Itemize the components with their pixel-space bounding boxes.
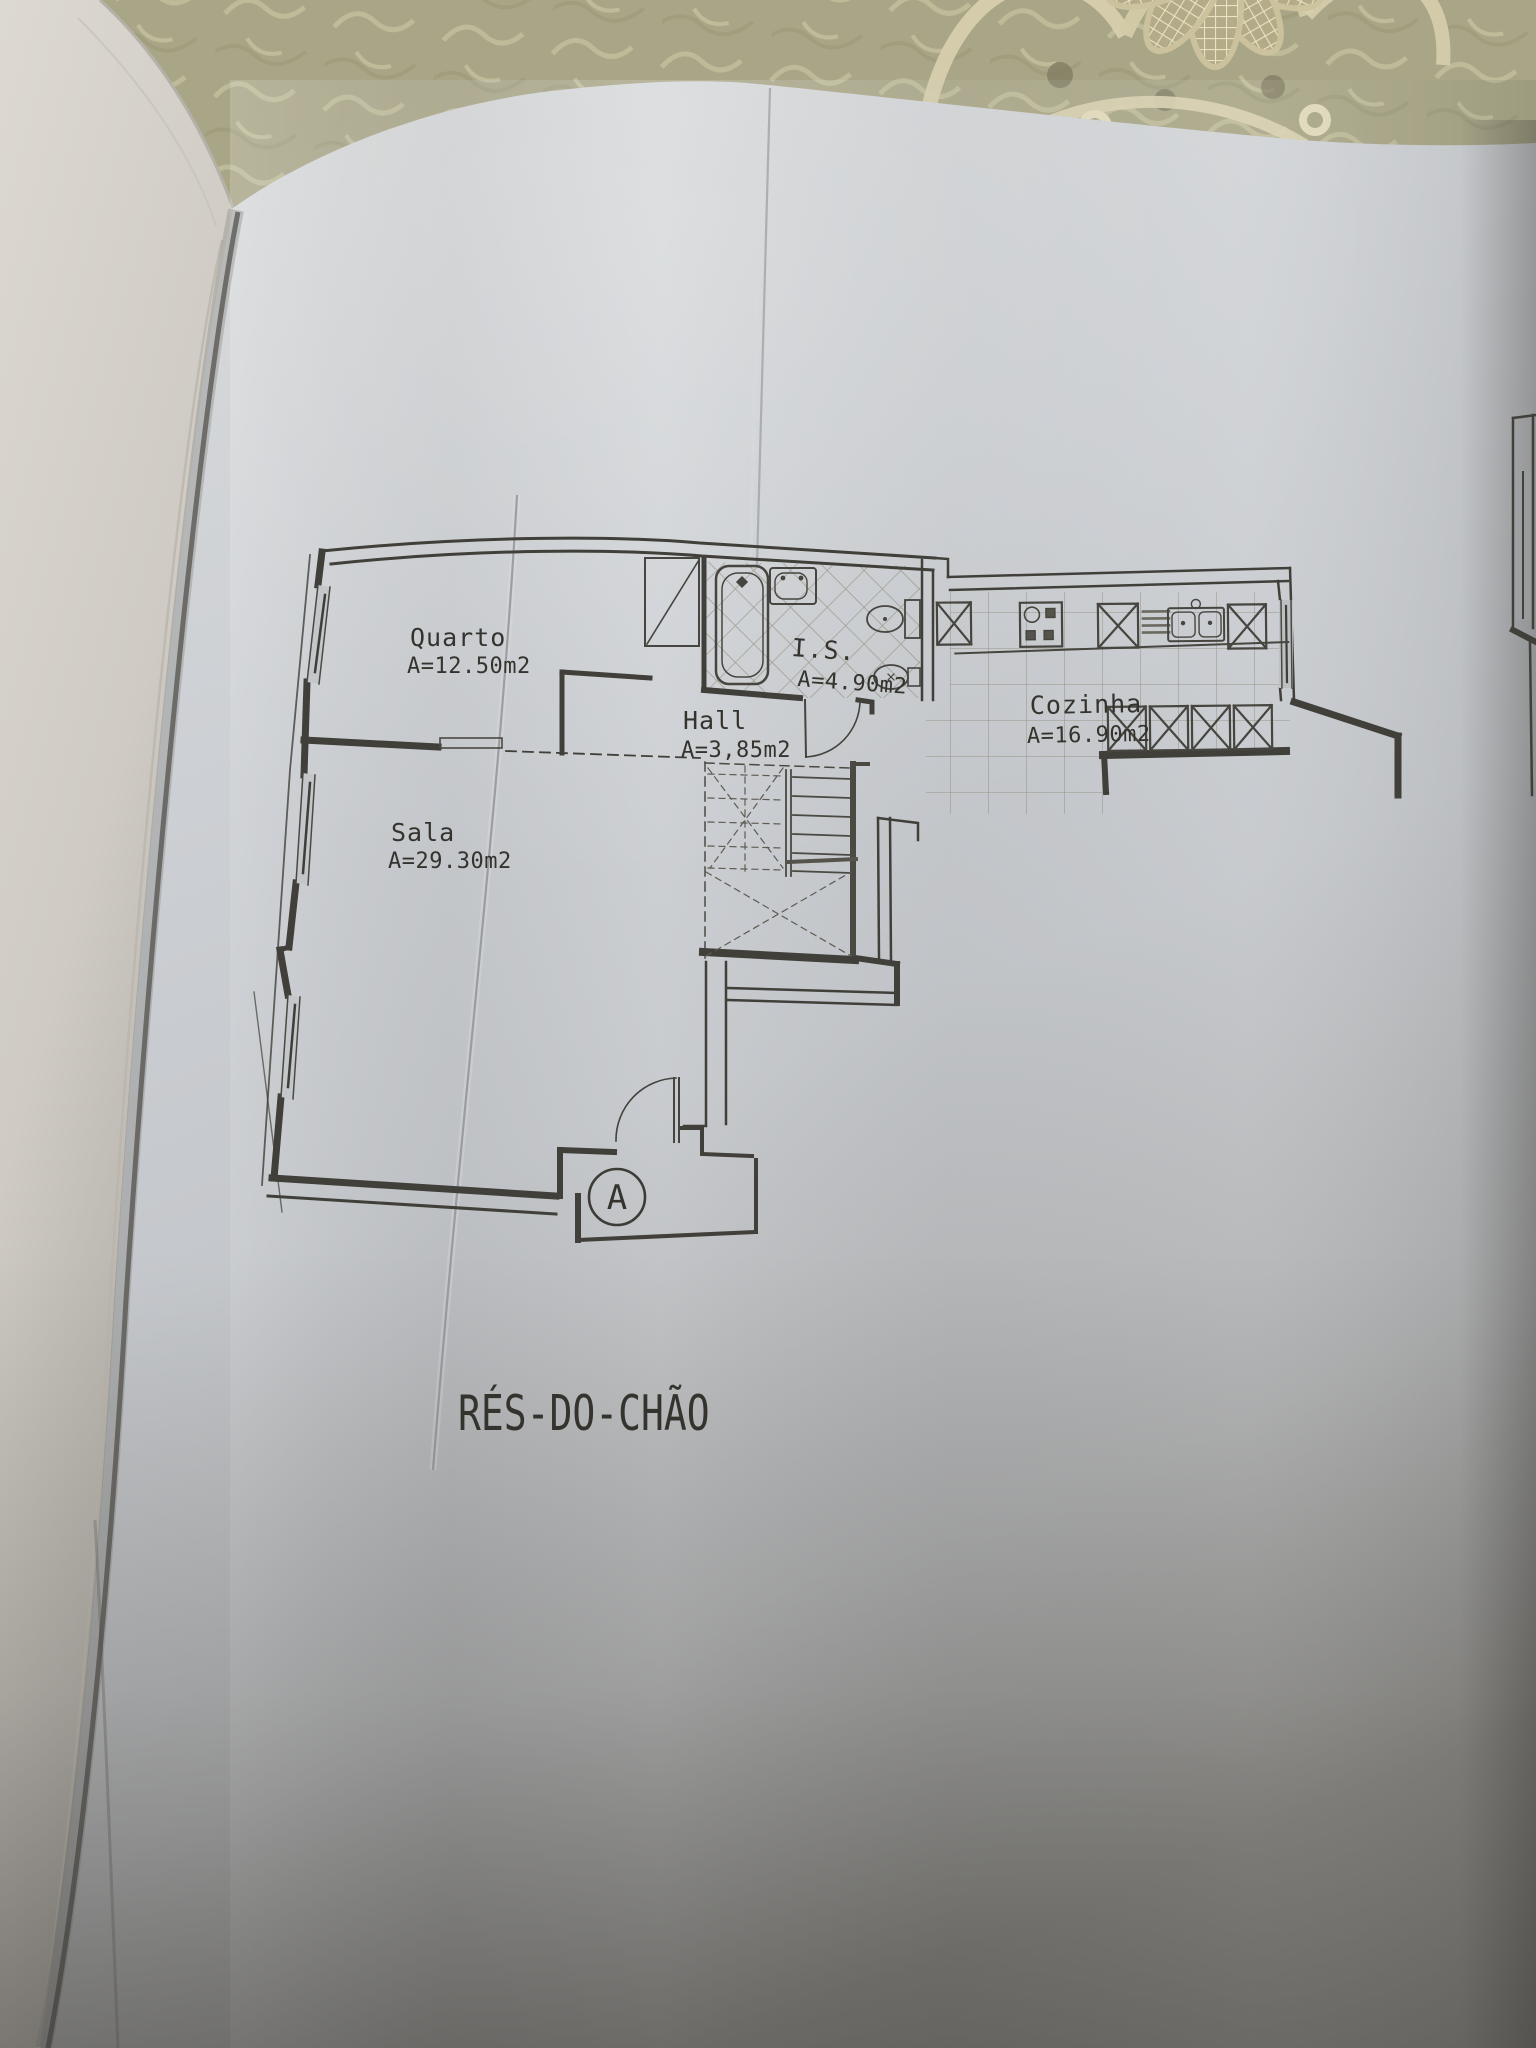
room-area-sala: A=29.30m2 xyxy=(388,849,512,874)
room-label-sala: Sala xyxy=(391,818,455,847)
section-marker-letter: A xyxy=(607,1178,627,1218)
room-area-hall: A=3,85m2 xyxy=(681,738,791,763)
window-kitchen xyxy=(1279,600,1293,688)
right-edge-shadow xyxy=(1460,120,1536,2048)
photo-of-floor-plan-page: Quarto A=12.50m2 Sala A=29.30m2 Hall A=3… xyxy=(0,0,1536,2048)
room-area-quarto: A=12.50m2 xyxy=(407,654,531,679)
room-label-is: I.S. xyxy=(791,633,857,666)
room-label-quarto: Quarto xyxy=(410,623,506,652)
scene-canvas: Quarto A=12.50m2 Sala A=29.30m2 Hall A=3… xyxy=(0,0,1536,2048)
room-label-hall: Hall xyxy=(683,706,747,735)
room-label-cozinha: Cozinha xyxy=(1030,689,1143,720)
room-area-cozinha: A=16.90m2 xyxy=(1027,722,1151,749)
bottom-shadow xyxy=(0,1250,1536,2048)
